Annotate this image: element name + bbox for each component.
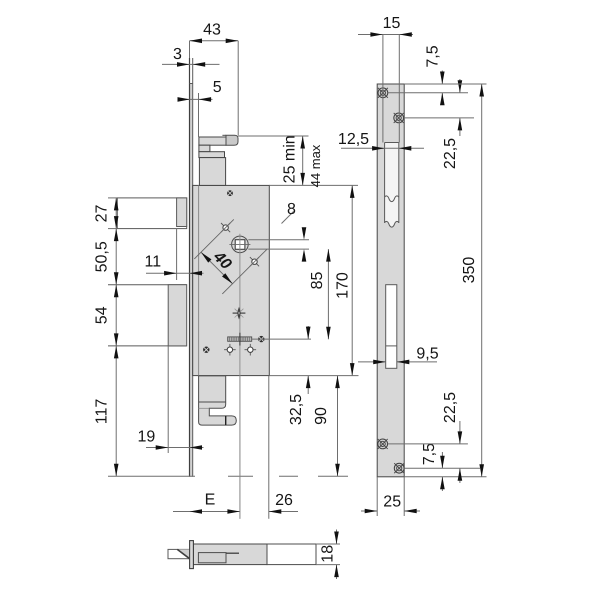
svg-text:90: 90	[313, 407, 330, 425]
svg-text:19: 19	[138, 428, 156, 445]
svg-text:43: 43	[203, 22, 221, 39]
svg-text:7,5: 7,5	[424, 45, 441, 67]
svg-text:50,5: 50,5	[93, 241, 110, 272]
svg-text:7,5: 7,5	[421, 443, 438, 465]
svg-text:9,5: 9,5	[416, 346, 438, 363]
svg-text:26: 26	[275, 492, 293, 509]
svg-text:8: 8	[287, 201, 296, 218]
svg-text:E: E	[205, 492, 216, 509]
svg-text:5: 5	[213, 79, 222, 96]
svg-text:44 max: 44 max	[308, 144, 323, 187]
svg-text:27: 27	[93, 205, 110, 223]
svg-text:15: 15	[383, 15, 401, 32]
svg-text:25 min: 25 min	[282, 135, 299, 183]
svg-text:22,5: 22,5	[442, 138, 459, 169]
svg-text:85: 85	[309, 272, 326, 290]
svg-text:25: 25	[383, 494, 401, 511]
svg-text:3: 3	[173, 46, 182, 63]
svg-text:350: 350	[461, 257, 478, 284]
svg-text:12,5: 12,5	[338, 131, 369, 148]
svg-text:11: 11	[144, 254, 161, 271]
svg-text:18: 18	[320, 545, 337, 563]
svg-text:32,5: 32,5	[288, 394, 305, 425]
svg-text:117: 117	[93, 399, 110, 425]
svg-text:22,5: 22,5	[442, 392, 459, 423]
svg-text:54: 54	[93, 306, 110, 324]
svg-text:170: 170	[334, 272, 351, 299]
